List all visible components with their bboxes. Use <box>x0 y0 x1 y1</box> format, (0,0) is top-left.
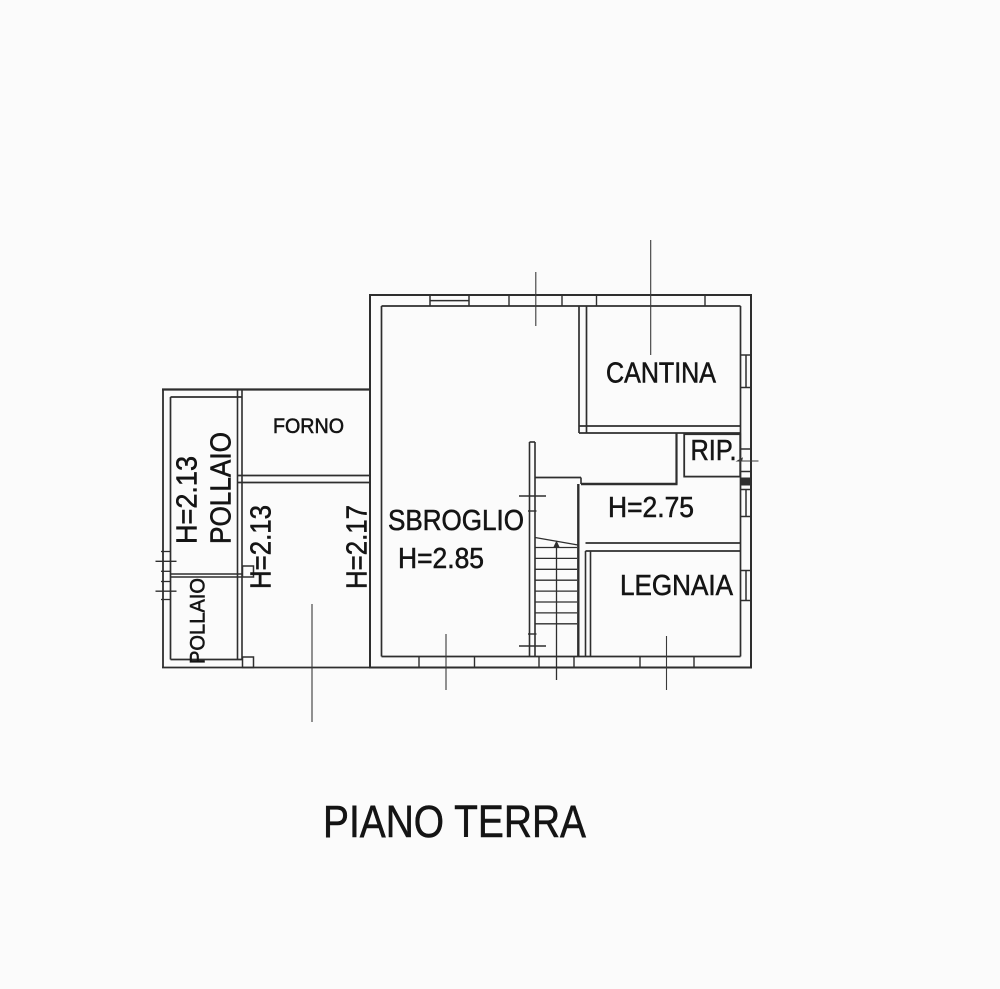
svg-text:LEGNAIA: LEGNAIA <box>620 570 733 602</box>
svg-text:H=2.17: H=2.17 <box>342 505 374 589</box>
svg-text:CANTINA: CANTINA <box>606 358 716 390</box>
svg-text:H=2.13: H=2.13 <box>246 505 278 589</box>
svg-text:POLLAIO: POLLAIO <box>206 432 238 544</box>
svg-text:POLLAIO: POLLAIO <box>187 578 210 664</box>
svg-text:H=2.75: H=2.75 <box>608 492 694 524</box>
svg-text:FORNO: FORNO <box>273 415 344 438</box>
svg-text:H=2.85: H=2.85 <box>398 543 484 575</box>
svg-text:H=2.13: H=2.13 <box>172 456 204 544</box>
svg-text:SBROGLIO: SBROGLIO <box>388 505 524 537</box>
svg-text:RIP.: RIP. <box>691 435 737 467</box>
svg-text:PIANO TERRA: PIANO TERRA <box>323 796 587 847</box>
